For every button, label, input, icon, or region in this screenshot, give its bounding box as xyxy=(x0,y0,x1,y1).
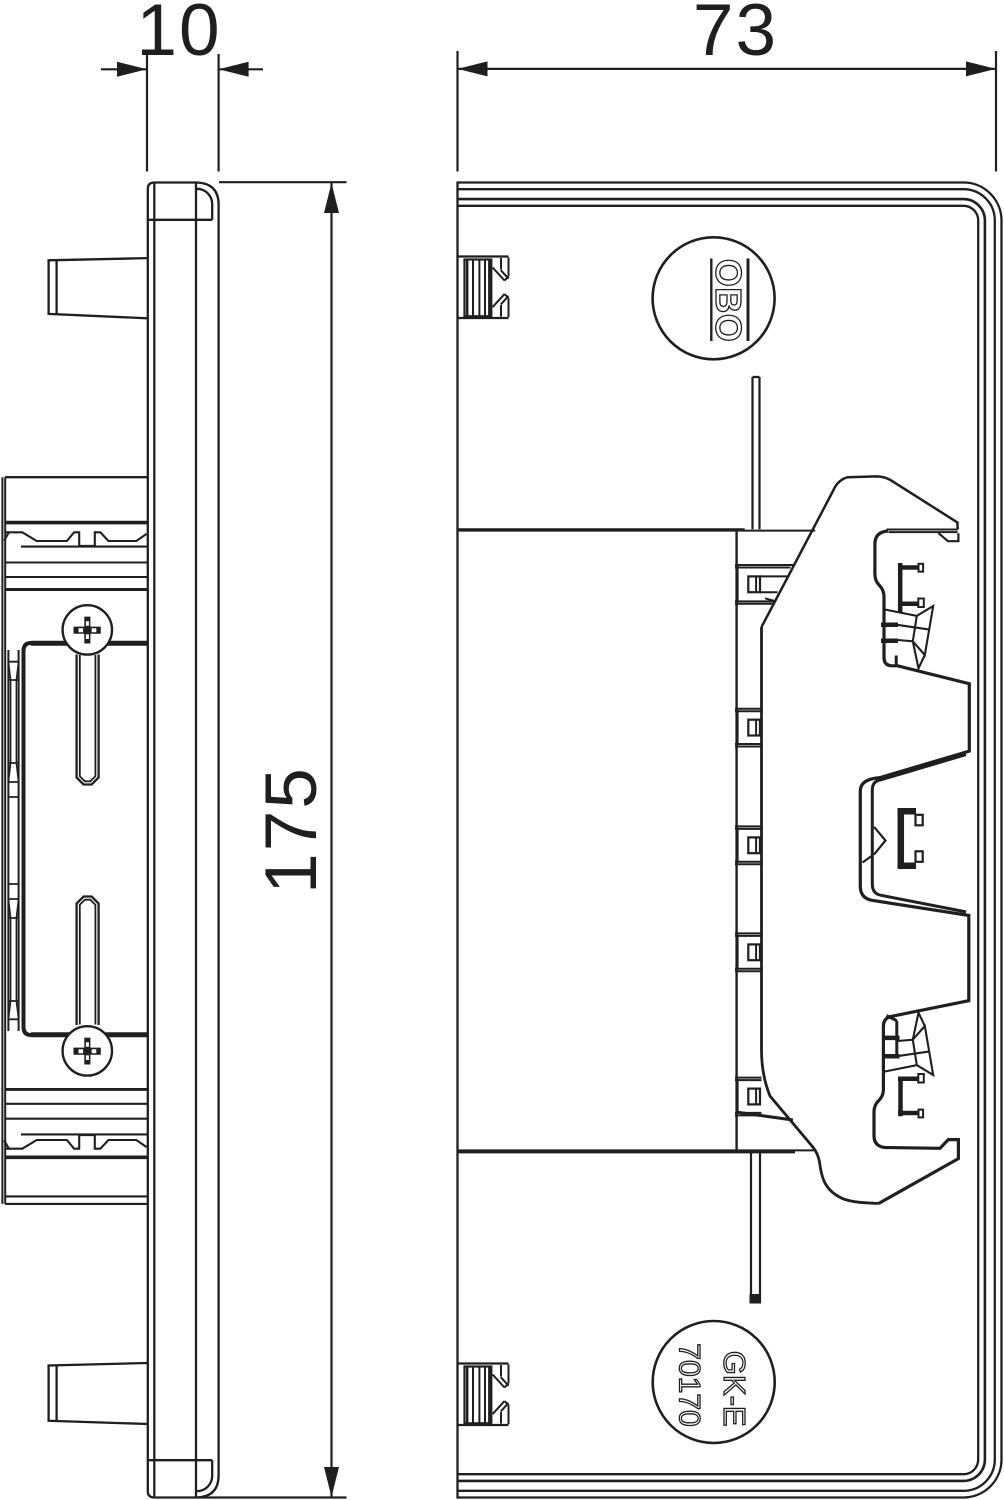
svg-text:OBO: OBO xyxy=(708,259,749,343)
svg-text:70170: 70170 xyxy=(673,1343,706,1426)
svg-text:175: 175 xyxy=(251,766,332,894)
svg-text:73: 73 xyxy=(693,0,778,71)
svg-text:10: 10 xyxy=(136,0,221,71)
svg-text:GK-E: GK-E xyxy=(717,1351,752,1427)
